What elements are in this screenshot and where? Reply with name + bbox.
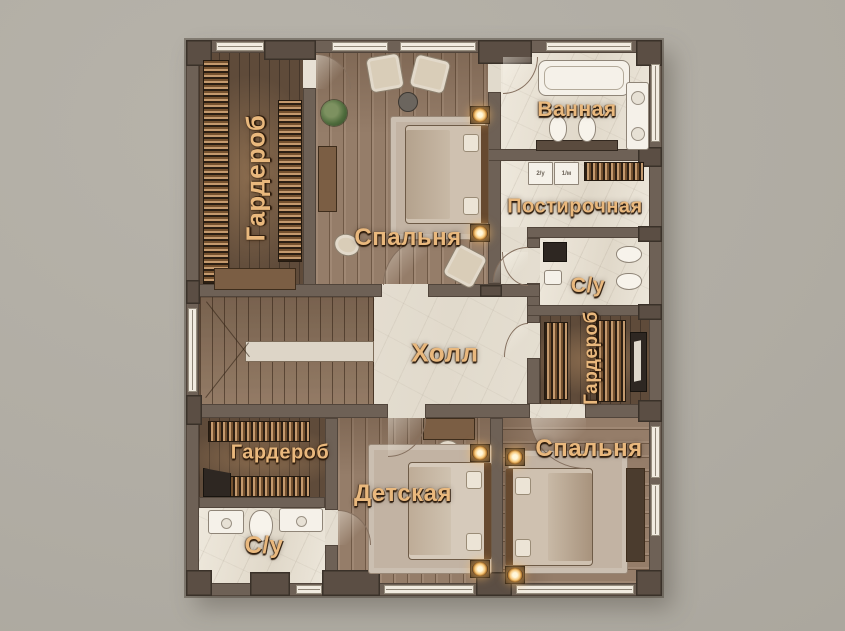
pillar (638, 304, 662, 320)
nightstand (505, 448, 525, 466)
pillow (463, 134, 479, 152)
room-label-laundry: Постирочная (507, 196, 642, 219)
drain (296, 516, 307, 527)
lamp-icon (472, 108, 488, 122)
plant-icon (321, 100, 347, 126)
room-label-bedroom-top: Спальня (354, 224, 461, 252)
window (216, 42, 264, 51)
floor-plan-canvas: 2/у 1/м (0, 0, 845, 631)
wall (303, 88, 316, 297)
room-label-bathroom: Ванная (537, 98, 616, 122)
cabinet-detail (634, 340, 641, 381)
door-arc (504, 323, 528, 357)
blanket (548, 473, 592, 561)
headboard (484, 463, 491, 559)
lamp-icon (472, 226, 488, 240)
sink-icon (279, 508, 323, 532)
desk (423, 418, 475, 440)
wall (527, 227, 649, 238)
bed (408, 462, 492, 560)
pillar (186, 280, 200, 304)
sink-icon (208, 510, 244, 534)
vanity (626, 82, 649, 150)
nightstand (470, 106, 490, 124)
room-label-bedroom-bottom-right: Спальня (535, 435, 642, 463)
window (296, 585, 322, 594)
drain (221, 518, 232, 529)
bathtub (538, 60, 630, 96)
pillar (636, 40, 662, 66)
room-label-wc-bottom-left: С/у (245, 532, 284, 560)
wall (425, 404, 530, 418)
clothes-rack (208, 421, 310, 442)
nightstand (470, 224, 490, 242)
washing-machine: 2/у (528, 162, 553, 185)
wall (527, 358, 540, 404)
headboard (481, 126, 488, 223)
window (332, 42, 388, 51)
pillar (638, 400, 662, 422)
stair-landing (245, 341, 374, 362)
wall (527, 238, 540, 248)
pillar (638, 226, 662, 242)
floor-plan: 2/у 1/м (186, 40, 662, 596)
washing-machine: 1/м (554, 162, 579, 185)
window (400, 42, 476, 51)
washer-badge: 1/м (555, 163, 578, 184)
armchair (365, 52, 405, 93)
pillow (515, 539, 531, 557)
lamp-icon (507, 450, 523, 464)
window (651, 64, 660, 142)
room-label-hall: Холл (411, 338, 478, 369)
pillow (463, 197, 479, 215)
window (651, 484, 660, 536)
room-label-wardrobe-right: Гардероб (581, 311, 603, 405)
pillar (250, 572, 290, 596)
headboard (506, 469, 513, 565)
room-label-wardrobe-bottom-left: Гардероб (231, 442, 330, 465)
washer-badge: 2/у (529, 163, 552, 184)
clothes-rack (278, 100, 302, 262)
toilet-icon (616, 246, 642, 263)
pillar (480, 285, 502, 297)
bathroom-counter (536, 140, 618, 151)
nightstand (470, 560, 490, 578)
clothes-rack (203, 60, 229, 284)
room-label-kids-room: Детская (354, 480, 452, 508)
blanket (406, 130, 450, 219)
wall (186, 404, 388, 418)
window (384, 585, 474, 594)
wardrobe-cabinet (626, 468, 645, 562)
room-label-wardrobe-top-left: Гардероб (241, 115, 272, 242)
pillow (466, 471, 482, 489)
bathtub-inner (544, 66, 624, 90)
drying-rack (584, 162, 644, 181)
window (516, 585, 634, 594)
pillar (636, 570, 662, 596)
nightstand (470, 444, 490, 462)
lamp-icon (472, 562, 488, 576)
sink-icon (631, 91, 645, 105)
lamp-icon (507, 568, 523, 582)
window (546, 42, 632, 51)
wall (199, 497, 325, 508)
side-table (398, 92, 418, 112)
sink-icon (631, 127, 645, 141)
wardrobe-bench (214, 268, 296, 290)
pillar (186, 395, 202, 425)
pillow (466, 533, 482, 551)
room-label-wc-right: С/у (571, 274, 605, 298)
desk (318, 146, 337, 212)
lamp-icon (472, 446, 488, 460)
shower-icon (543, 242, 567, 262)
cabinet (630, 332, 647, 392)
pillar (264, 40, 316, 60)
sink-icon (544, 270, 562, 285)
clothes-rack (544, 322, 568, 400)
bed (505, 468, 593, 566)
pillow (515, 477, 531, 495)
window (188, 308, 197, 392)
pillar (186, 570, 212, 596)
window (651, 426, 660, 478)
nightstand (505, 566, 525, 584)
toilet-icon (616, 273, 642, 290)
bed (405, 125, 489, 224)
